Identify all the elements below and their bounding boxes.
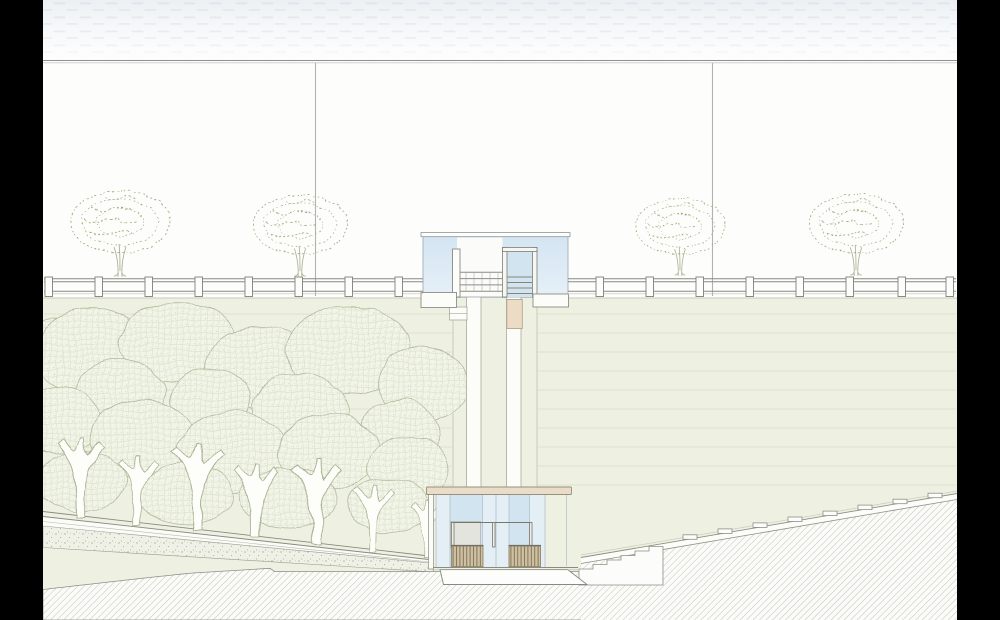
elevator-car bbox=[507, 300, 523, 329]
guardrail-post bbox=[646, 277, 654, 297]
guardrail-post bbox=[846, 277, 854, 297]
platform-post bbox=[453, 249, 461, 297]
forest-canopy-blob bbox=[348, 478, 428, 534]
slope-step-block bbox=[718, 529, 732, 534]
slope-step-block bbox=[823, 511, 837, 515]
slatted-bench bbox=[452, 546, 484, 567]
upper-pavilion bbox=[421, 233, 570, 308]
frame-right bbox=[533, 248, 538, 298]
section-drawing-canvas bbox=[0, 0, 1000, 620]
guardrail-post bbox=[345, 277, 353, 297]
guardrail-post bbox=[746, 277, 754, 297]
guardrail-post bbox=[395, 277, 403, 297]
guardrail-post bbox=[898, 277, 906, 297]
elevator-door-panel bbox=[451, 522, 481, 549]
frame-left bbox=[503, 248, 508, 298]
upper-open-bay bbox=[457, 238, 503, 297]
elevator-shaft-frame bbox=[503, 248, 538, 298]
letterbox-right bbox=[957, 0, 1000, 620]
pavilion-plinth bbox=[440, 570, 587, 585]
guardrail-post bbox=[696, 277, 704, 297]
letterbox-left bbox=[0, 0, 43, 620]
forest-canopy-blob bbox=[137, 464, 233, 524]
guardrail-post bbox=[596, 277, 604, 297]
upper-roof-edge bbox=[421, 233, 570, 237]
slope-step-block bbox=[928, 493, 942, 498]
slope-step-block bbox=[683, 535, 697, 540]
slope-step-block bbox=[753, 523, 767, 528]
forest-canopy bbox=[18, 302, 468, 534]
guardrail-post bbox=[145, 277, 153, 297]
sky-texture-band bbox=[43, 0, 957, 60]
guardrail-post bbox=[45, 277, 53, 297]
guardrail-post bbox=[95, 277, 103, 297]
pavilion-left-wall bbox=[429, 495, 434, 570]
elevator-glass bbox=[507, 252, 533, 298]
slope-step-block bbox=[788, 517, 802, 522]
slope-step-block bbox=[893, 499, 907, 504]
upper-base-block-right bbox=[533, 294, 569, 307]
railing-post bbox=[530, 523, 533, 548]
upper-base-block-left bbox=[421, 293, 457, 308]
guardrail-post bbox=[195, 277, 203, 297]
slope-step-block bbox=[858, 505, 872, 510]
guardrail-post bbox=[946, 277, 954, 297]
lower-pavilion-roof bbox=[427, 487, 572, 495]
sky-fade bbox=[43, 0, 957, 60]
slatted-bench bbox=[509, 546, 541, 567]
frame-top bbox=[503, 248, 538, 252]
guardrail-post bbox=[796, 277, 804, 297]
guardrail-post bbox=[245, 277, 253, 297]
railing-post bbox=[452, 523, 455, 548]
shaft-strip-left bbox=[467, 296, 482, 488]
railing-post bbox=[493, 523, 496, 548]
guardrail-post bbox=[295, 277, 303, 297]
architectural-section-drawing bbox=[0, 0, 1000, 620]
